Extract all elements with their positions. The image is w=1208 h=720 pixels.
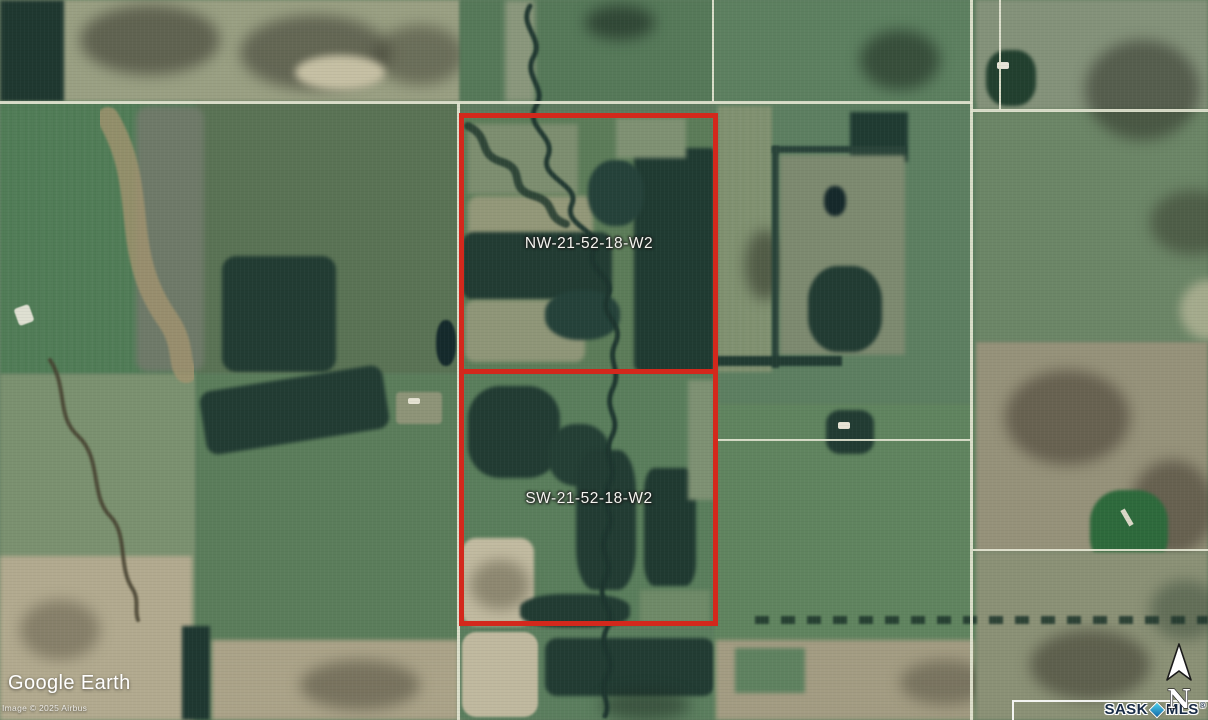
left-creek (50, 360, 138, 620)
north-arrow-compass: N (1158, 642, 1202, 718)
imagery-attribution: Image © 2025 Airbus (2, 703, 87, 713)
parcel-label-sw: SW-21-52-18-W2 (525, 490, 652, 508)
road-line (973, 549, 1208, 551)
road-line (0, 101, 972, 104)
road-line (712, 0, 714, 102)
road-line (971, 109, 1208, 112)
tan-swath (108, 118, 186, 372)
road-line (999, 0, 1001, 110)
parcel-divider-line (459, 369, 718, 374)
parcel-label-nw: NW-21-52-18-W2 (525, 235, 653, 253)
compass-n-label: N (1167, 685, 1191, 715)
brand-sask-text: SASK (1105, 701, 1148, 718)
road-line (970, 0, 973, 720)
north-arrow-icon (1167, 644, 1191, 680)
road-line (717, 439, 971, 441)
google-earth-logo: Google Earth (8, 672, 131, 695)
map-viewport[interactable]: NW-21-52-18-W2 SW-21-52-18-W2 Google Ear… (0, 0, 1208, 720)
